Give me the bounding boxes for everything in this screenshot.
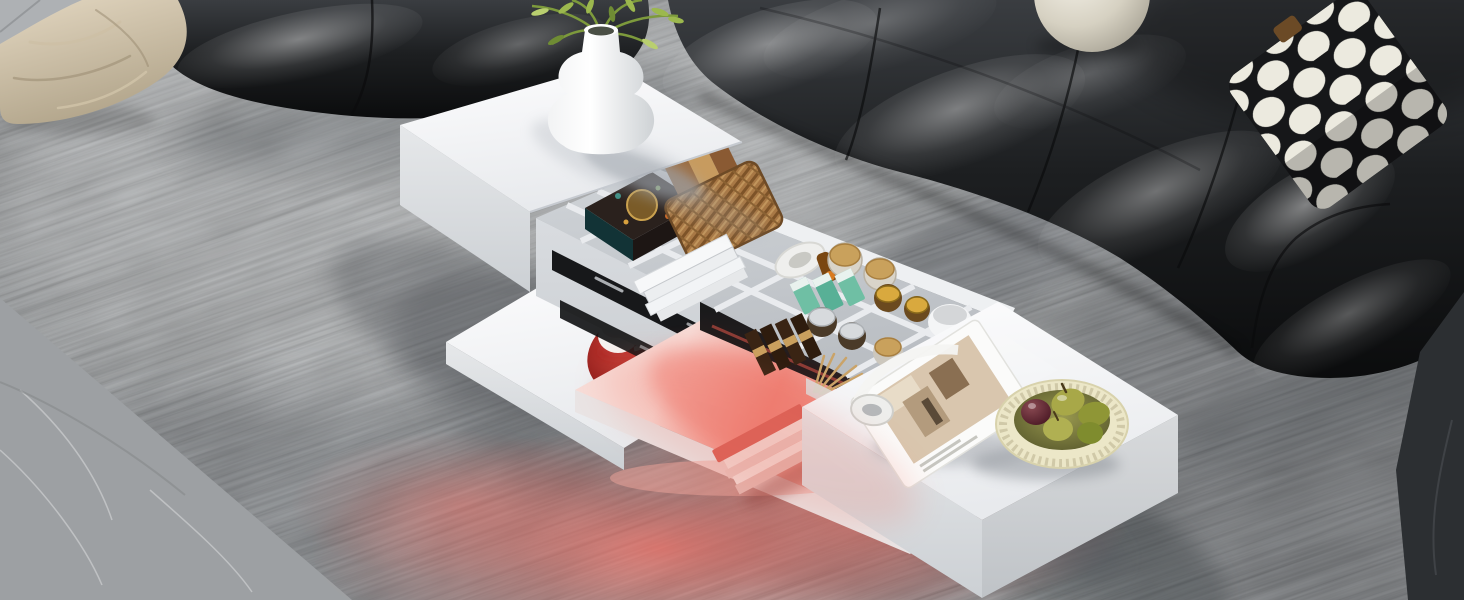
vase-mouth [588, 27, 614, 36]
scene-canvas [0, 0, 1464, 600]
living-room-product-photo [0, 0, 1464, 600]
